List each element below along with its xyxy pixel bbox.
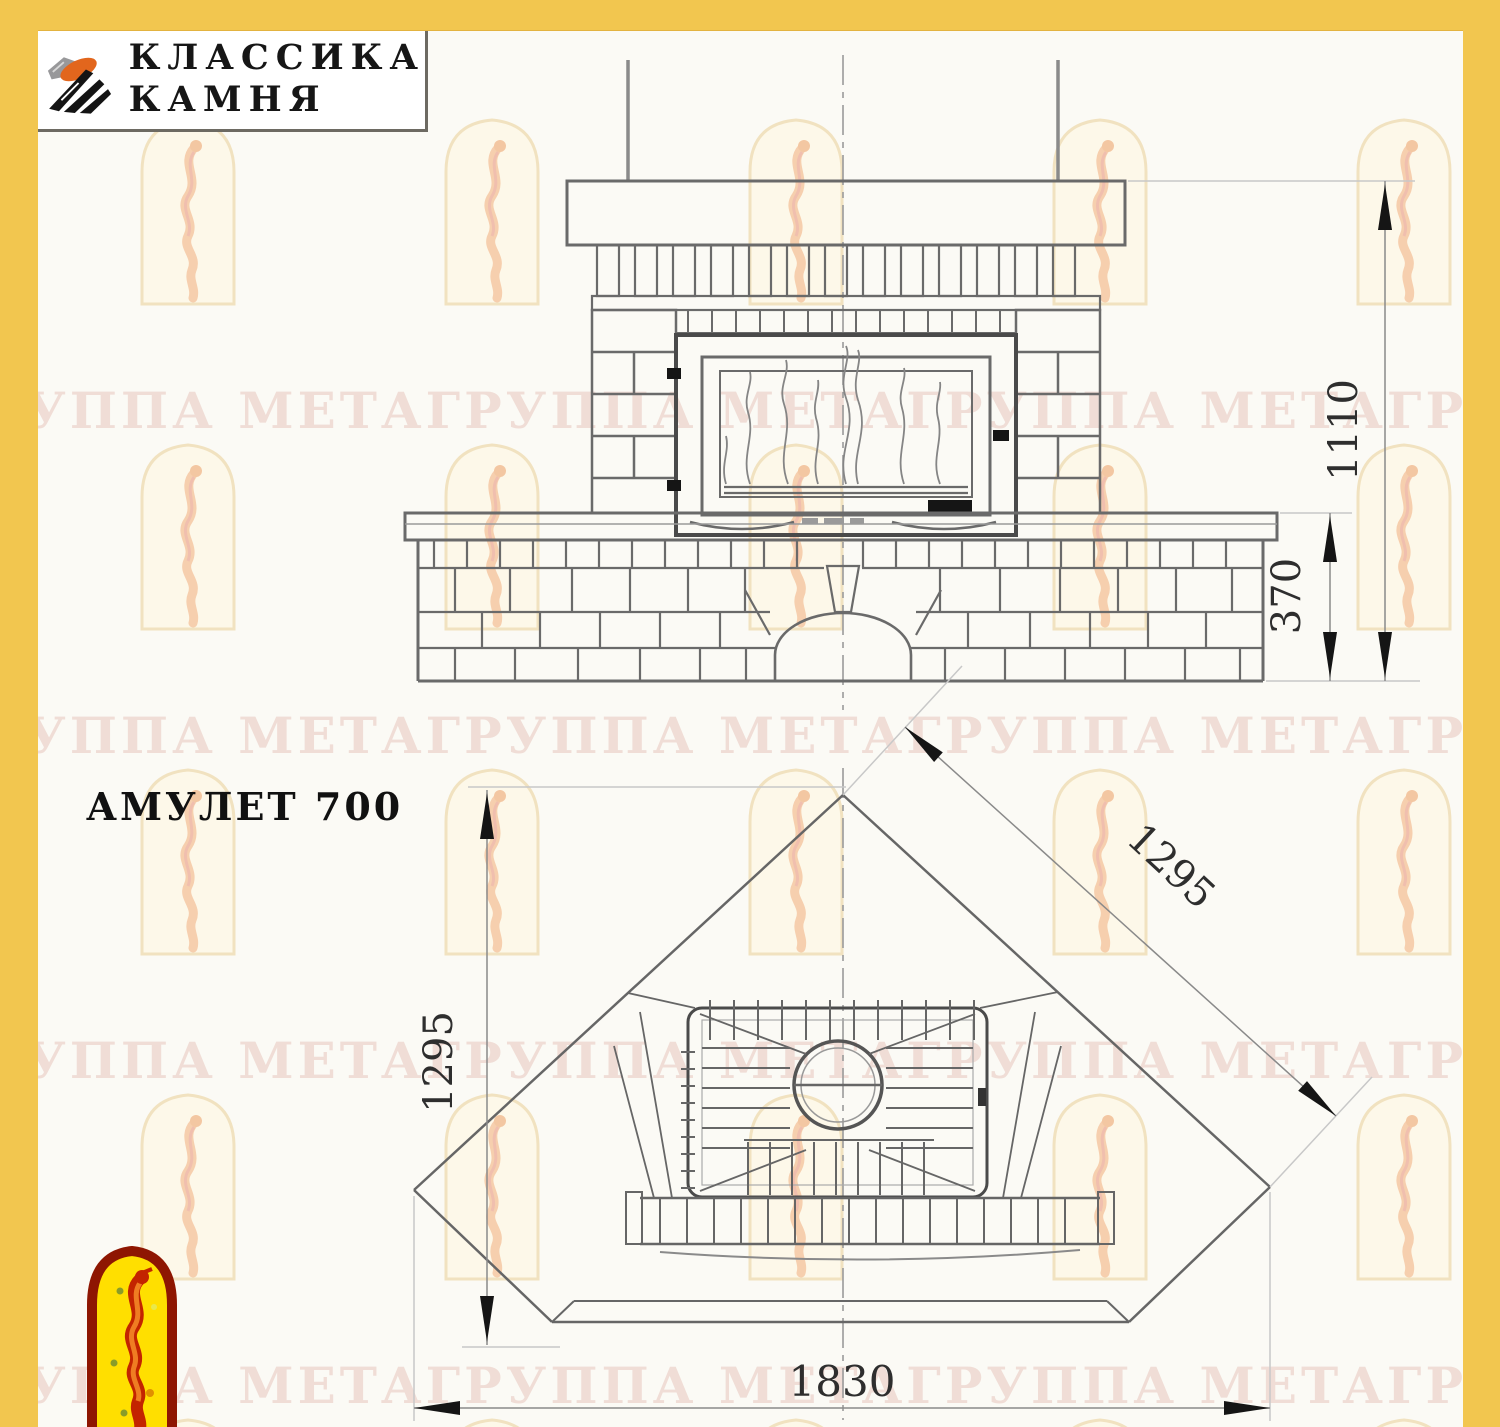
page-title: АМУЛЕТ 700 xyxy=(86,784,403,829)
door-handle xyxy=(993,430,1009,441)
logo-text-line2: КАМНЯ xyxy=(129,79,425,121)
technical-drawing: 1110 370 xyxy=(0,0,1500,1427)
plan-view xyxy=(414,666,1372,1421)
brick-column-left xyxy=(592,310,676,513)
frame-strip-right xyxy=(1463,0,1500,1427)
door-hinge-top xyxy=(667,368,681,379)
brick-column-right xyxy=(1016,310,1100,513)
firebox-insert xyxy=(667,335,1016,535)
scanned-drawing-page: ГРУППА МЕТАГРУППА МЕТАГРУППА МЕТАГРУППА … xyxy=(0,0,1500,1427)
hearth-band xyxy=(626,1192,1114,1260)
stone-logo-icon xyxy=(43,35,117,131)
brand-logo-box: КЛАССИКА КАМНЯ xyxy=(30,26,428,132)
flames-drawing xyxy=(724,346,940,484)
firebox-plan xyxy=(681,1000,987,1197)
mantel-shelf xyxy=(567,181,1125,245)
firebox-glass xyxy=(720,371,972,497)
frame-strip-top xyxy=(0,0,1500,31)
dim-plan-width-label: 1830 xyxy=(789,1357,896,1406)
dentil-band xyxy=(592,245,1100,310)
plan-dimension-lines xyxy=(414,666,1372,1421)
frame-strip-left xyxy=(0,0,38,1427)
dim-plan-side-label: 1295 xyxy=(1118,815,1224,918)
vent-slot xyxy=(928,500,972,512)
plan-dimension-arrows xyxy=(414,727,1336,1415)
dim-front-height-label: 1110 xyxy=(1321,379,1367,481)
grate-lines xyxy=(724,487,968,493)
dim-plinth-height-label: 370 xyxy=(1264,558,1310,634)
lintel-dentils xyxy=(676,310,1016,333)
dim-plan-depth-label: 1295 xyxy=(416,1011,462,1113)
firebird-emblem xyxy=(84,1243,180,1427)
bench-masonry xyxy=(418,540,1263,681)
logo-text-line1: КЛАССИКА xyxy=(129,37,425,79)
door-hinge-bottom xyxy=(667,480,681,491)
